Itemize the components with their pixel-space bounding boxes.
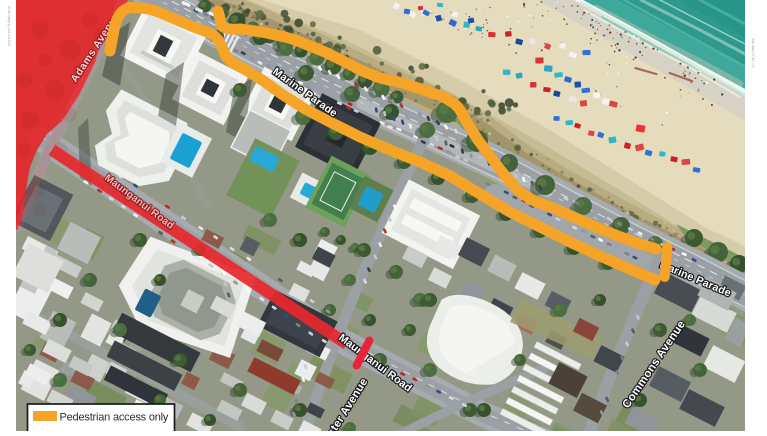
svg-text:Aerial imagery sourced 2021: Aerial imagery sourced 2021 [7, 6, 11, 47]
svg-text:Map data CC-BY 4.0: Map data CC-BY 4.0 [751, 38, 755, 68]
svg-text:Pedestrian access only: Pedestrian access only [60, 412, 169, 424]
